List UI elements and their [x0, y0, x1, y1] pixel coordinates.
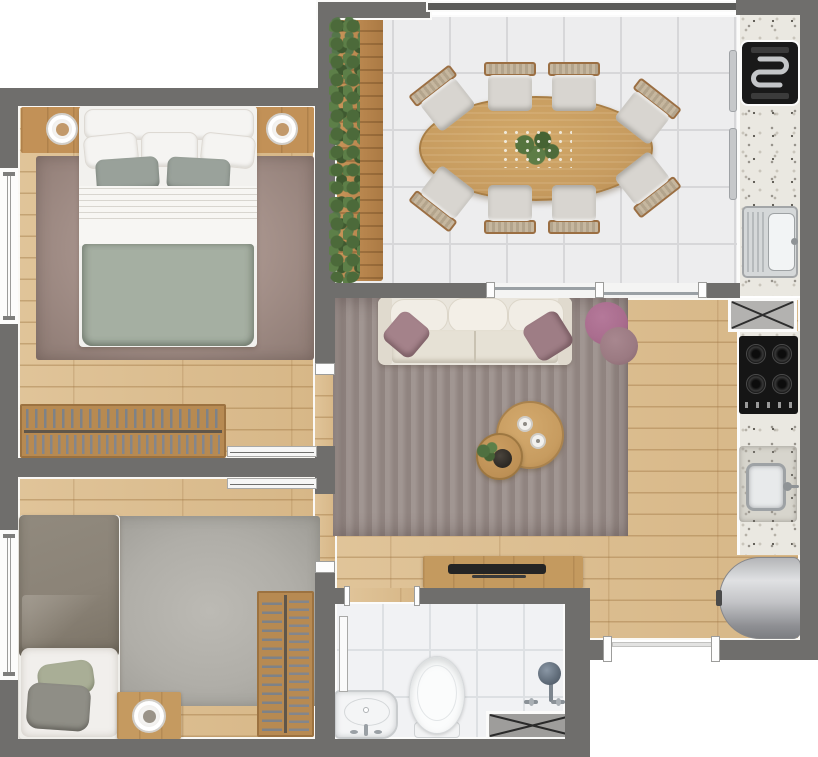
bathroom-door-jamb-right: [414, 586, 420, 606]
centerpiece-flowers: [500, 128, 572, 168]
toilet-lid-line: [417, 665, 457, 721]
tv: [448, 564, 546, 574]
window-cap-bottom: [3, 672, 15, 676]
chair-back: [548, 220, 600, 234]
bedroom2-door-jamb: [315, 561, 335, 573]
plate-center: [536, 439, 540, 443]
bed1-sheet-folds: [79, 188, 257, 222]
burner-2: [772, 344, 792, 364]
chair-seat: [488, 185, 532, 221]
shower-head: [538, 662, 561, 685]
tv-stand-bar: [472, 575, 526, 578]
wall-bedroom2-right-bathroom-left: [315, 573, 335, 757]
bedroom1-lamp-left: [46, 113, 78, 145]
entry-jamb-right: [711, 636, 720, 662]
burner-4: [772, 374, 792, 394]
entry-jamb-left: [603, 636, 612, 662]
bed1-blanket: [82, 244, 254, 346]
rack-hangers-right: [289, 597, 309, 731]
decor-plate-1: [517, 416, 533, 432]
toilet-seat: [409, 656, 465, 734]
shower-handle-left: [524, 700, 538, 704]
cooktop: [739, 336, 798, 414]
rack-rail: [284, 595, 287, 733]
wall-bathroom-right: [565, 588, 590, 757]
shaft-x-lines: [489, 714, 576, 737]
glass-door-mullion-1: [486, 282, 495, 298]
bedroom1-door-jamb: [315, 363, 335, 375]
dining-chair-3: [548, 62, 600, 112]
vertical-garden: [329, 17, 360, 283]
chair-seat: [488, 75, 532, 111]
basin-faucet: [364, 724, 368, 736]
chair-back: [548, 62, 600, 76]
bedroom1-sliding-door: [227, 446, 317, 457]
chair-seat: [552, 185, 596, 221]
basin-handle-right: [374, 730, 382, 734]
rack-hangers-top: [26, 409, 220, 428]
plate-center: [523, 422, 527, 426]
handle-knob: [529, 698, 534, 706]
bathroom-washbasin: [334, 690, 398, 739]
glass-door-mullion-3: [698, 282, 707, 298]
dining-chair-6: [484, 184, 536, 234]
bed2-duvet-fold: [22, 595, 116, 650]
pouf-2: [600, 327, 638, 365]
bedroom1-window: [0, 168, 18, 324]
wall-entry-right: [713, 640, 818, 660]
wall-balcony-living-right: [703, 283, 740, 298]
burner-1: [746, 344, 766, 364]
lamp-shade: [276, 123, 289, 136]
rack-hangers-left: [262, 597, 282, 731]
dining-chair-7: [548, 184, 600, 234]
water-heater: [719, 557, 801, 639]
balcony-glass-railing: [428, 3, 739, 10]
bathroom-door-jamb-left: [344, 586, 350, 606]
chair-seat: [552, 75, 596, 111]
rack-rail: [24, 430, 222, 433]
doorway-patch-bedroom1: [315, 375, 335, 446]
bedroom2-lamp: [132, 699, 166, 733]
shower-handle-right: [551, 700, 565, 704]
handle-knob: [556, 698, 561, 706]
glass-panel-2: [596, 292, 699, 295]
wall-balcony-living-left: [333, 283, 490, 298]
decor-plate-2: [530, 433, 546, 449]
window-glass: [7, 538, 11, 672]
window-cap-top: [3, 534, 15, 538]
wall-bedroom-divider: [0, 458, 333, 477]
decor-plant: [475, 440, 499, 462]
wall-door-block: [315, 446, 335, 494]
rack-hangers-bottom: [26, 435, 220, 454]
dining-chair-2: [484, 62, 536, 112]
floor-plan: [0, 0, 818, 757]
chair-back: [484, 62, 536, 76]
wall-bottom-exterior: [0, 739, 590, 757]
burner-3: [746, 374, 766, 394]
bathroom-door-leaf: [339, 616, 348, 692]
chair-back: [484, 220, 536, 234]
window-cap-top: [3, 172, 15, 176]
entry-threshold: [612, 642, 712, 647]
bed2-cushion-gray: [25, 682, 91, 732]
lamp-shade: [56, 123, 69, 136]
bedroom1-clothes-rack: [20, 404, 226, 458]
glass-panel-1: [494, 287, 600, 290]
basin-handle-left: [350, 730, 358, 734]
kitchen-sink: [746, 463, 786, 511]
bedroom2-clothes-rack: [257, 591, 314, 737]
kitchen-shaft: [728, 298, 797, 332]
grill-coil: [742, 42, 798, 104]
bedroom1-lamp-right: [266, 113, 298, 145]
water-heater-valve: [716, 590, 722, 606]
shaft-x-lines: [731, 301, 794, 329]
sofa-seat-split: [474, 331, 476, 362]
lamp-shade: [143, 710, 156, 723]
bedroom2-window: [0, 530, 18, 680]
glass-door-mullion-2: [595, 282, 604, 298]
basin-drain: [363, 707, 369, 713]
cooktop-knobs: [745, 402, 793, 408]
wall-bathroom-top: [417, 588, 565, 604]
window-glass: [7, 176, 11, 316]
kitchen-faucet-spout: [789, 485, 799, 488]
balcony-sink: [742, 206, 798, 278]
wall-right-exterior: [800, 0, 818, 660]
sink-drainboard: [747, 212, 767, 272]
window-cap-bottom: [3, 316, 15, 320]
grill-appliance: [742, 42, 798, 104]
counter-appliance-front-2: [729, 128, 737, 200]
bedroom2-sliding-door: [227, 478, 317, 489]
wall-bedroom1-top: [0, 88, 335, 106]
sink-faucet: [791, 238, 798, 245]
sofa-back-cushion-2: [448, 298, 508, 333]
counter-appliance-front-1: [729, 50, 737, 112]
